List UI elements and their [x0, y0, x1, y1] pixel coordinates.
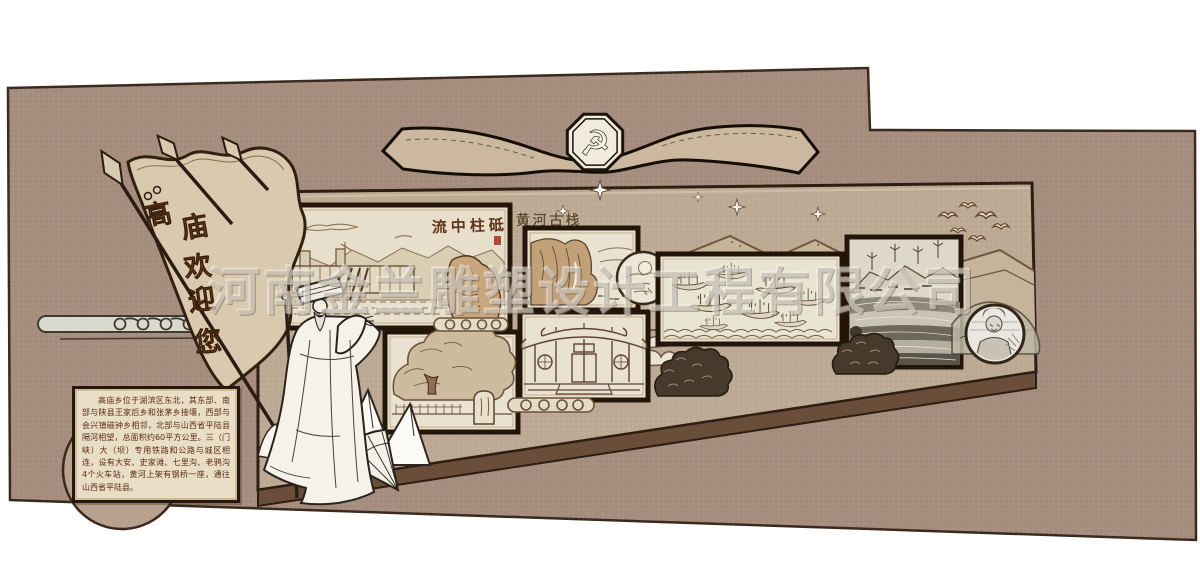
flag-char: 欢 [181, 250, 214, 285]
seal-stamp-icon [494, 236, 501, 245]
panel-dam-title: 流中柱砥 [432, 216, 509, 237]
portrait-medallion [966, 305, 1024, 363]
info-box: 高庙乡位于湖滨区东北，其东部、南部与陕县王家后乡和张茅乡接壤，西部与会兴镇磁钟乡… [72, 386, 240, 503]
panel-boats [658, 254, 842, 344]
flag-char: 庙 [178, 209, 210, 245]
design-rendering: 流中柱砥 黄河古栈 [0, 0, 1200, 567]
stele-sketch [474, 391, 494, 424]
panel-temple [520, 312, 648, 400]
hammer-sickle-icon: ☭ [580, 124, 610, 164]
panel-cliff: 黄河古栈 [516, 212, 638, 310]
party-emblem-medallion: ☭ [567, 114, 622, 169]
info-text: 高庙乡位于湖滨区东北，其东部、南部与陕县王家后乡和张茅乡接壤，西部与会兴镇磁钟乡… [82, 395, 230, 494]
flag-char: 迎 [186, 283, 217, 317]
flag-char: 您 [193, 325, 223, 360]
